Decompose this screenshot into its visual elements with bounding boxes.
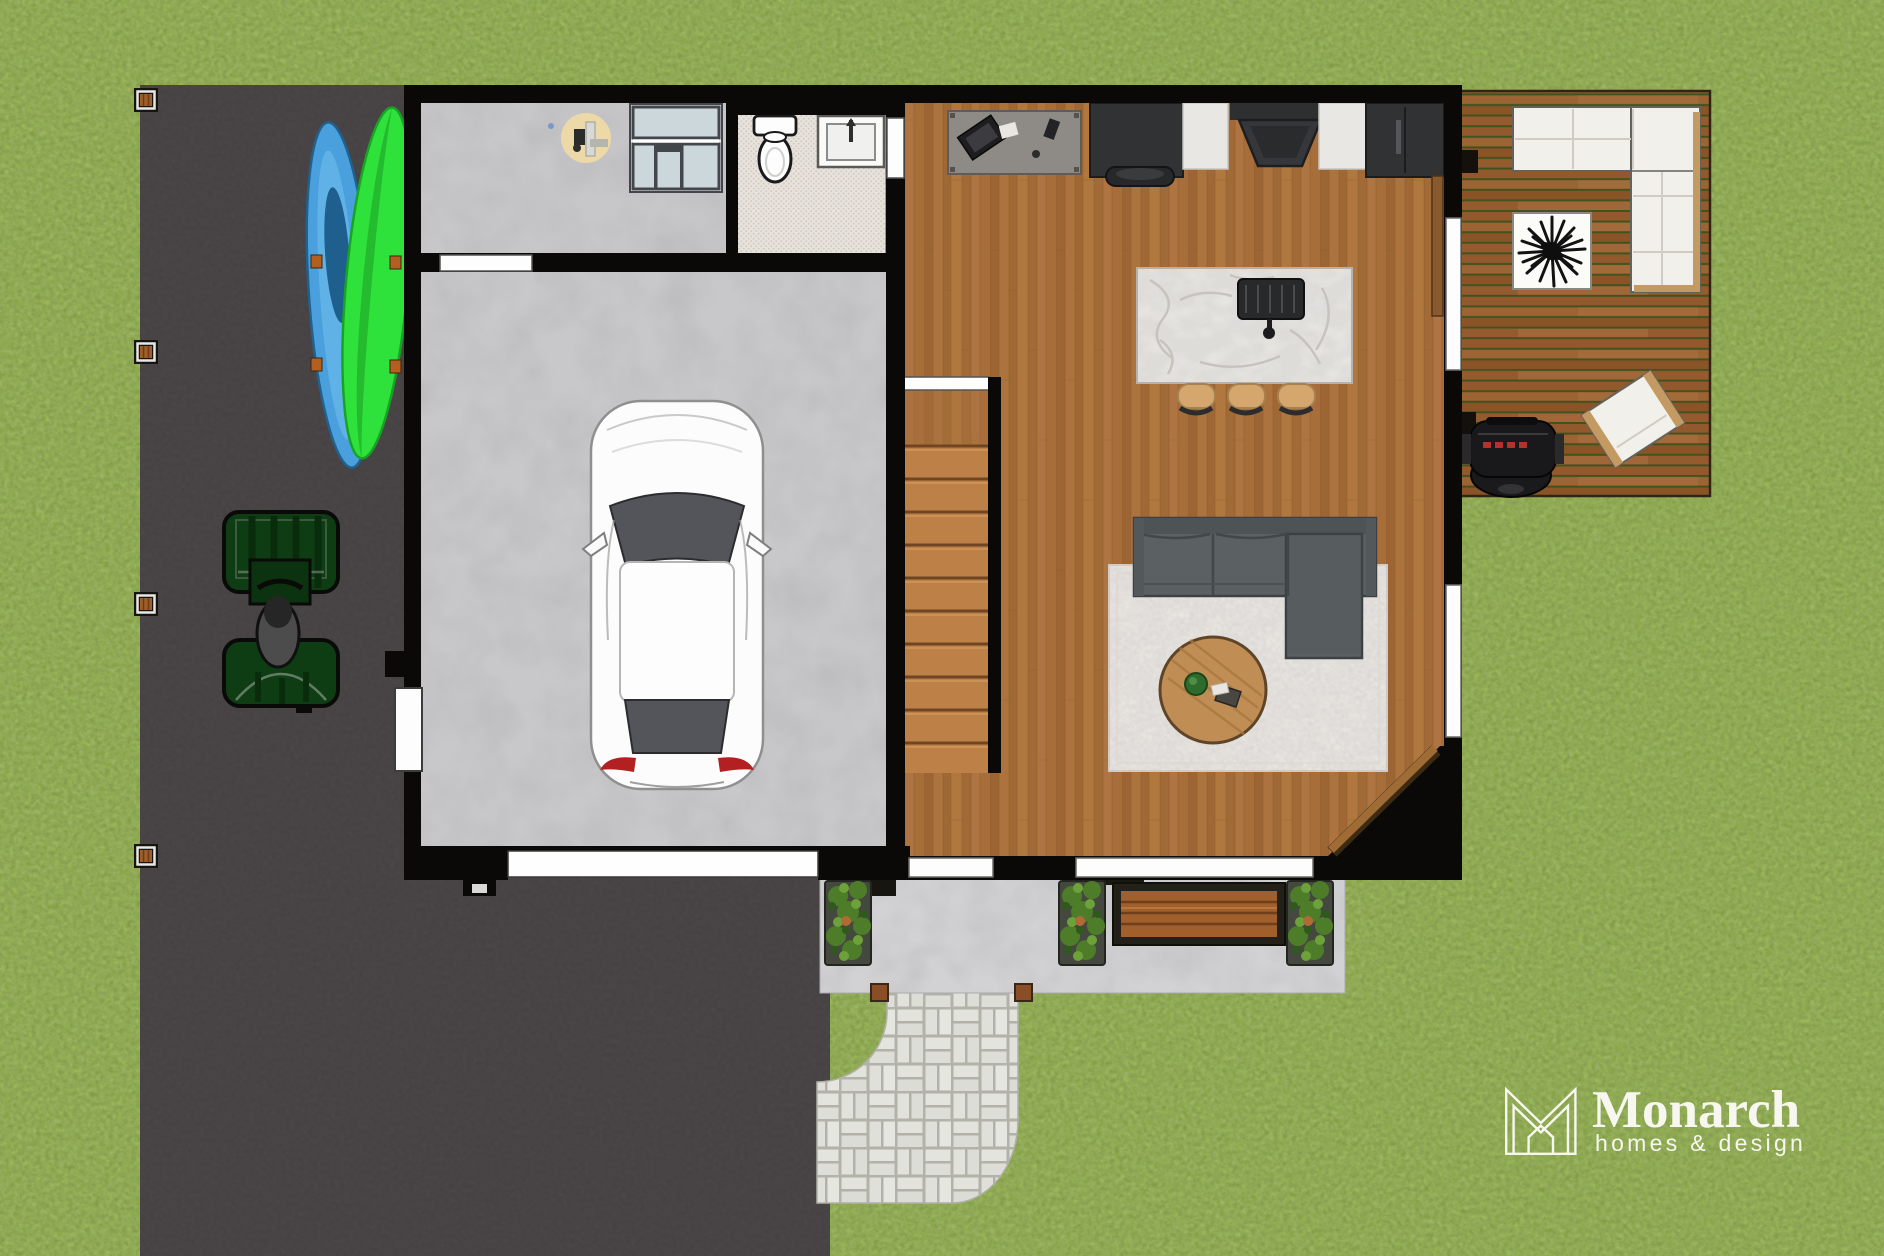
svg-text:homes & design: homes & design [1595,1130,1806,1156]
